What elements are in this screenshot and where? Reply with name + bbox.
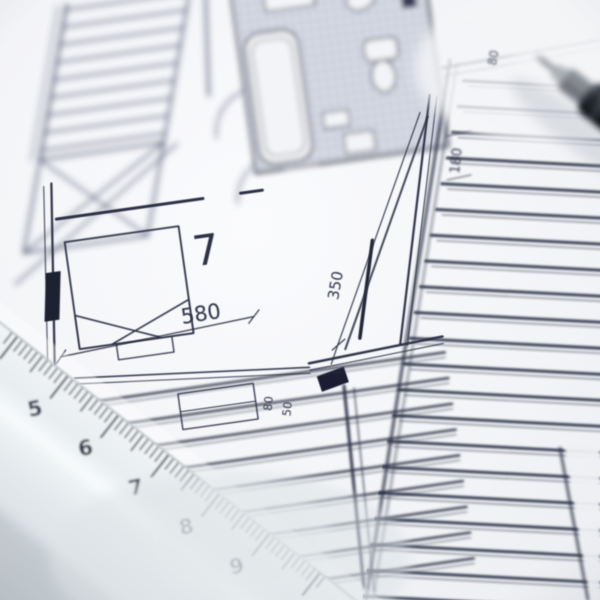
floor-plan-photo: 7 580 350 80 50 <box>0 0 600 600</box>
vignette <box>0 0 600 600</box>
scene-svg: 7 580 350 80 50 <box>0 0 600 600</box>
